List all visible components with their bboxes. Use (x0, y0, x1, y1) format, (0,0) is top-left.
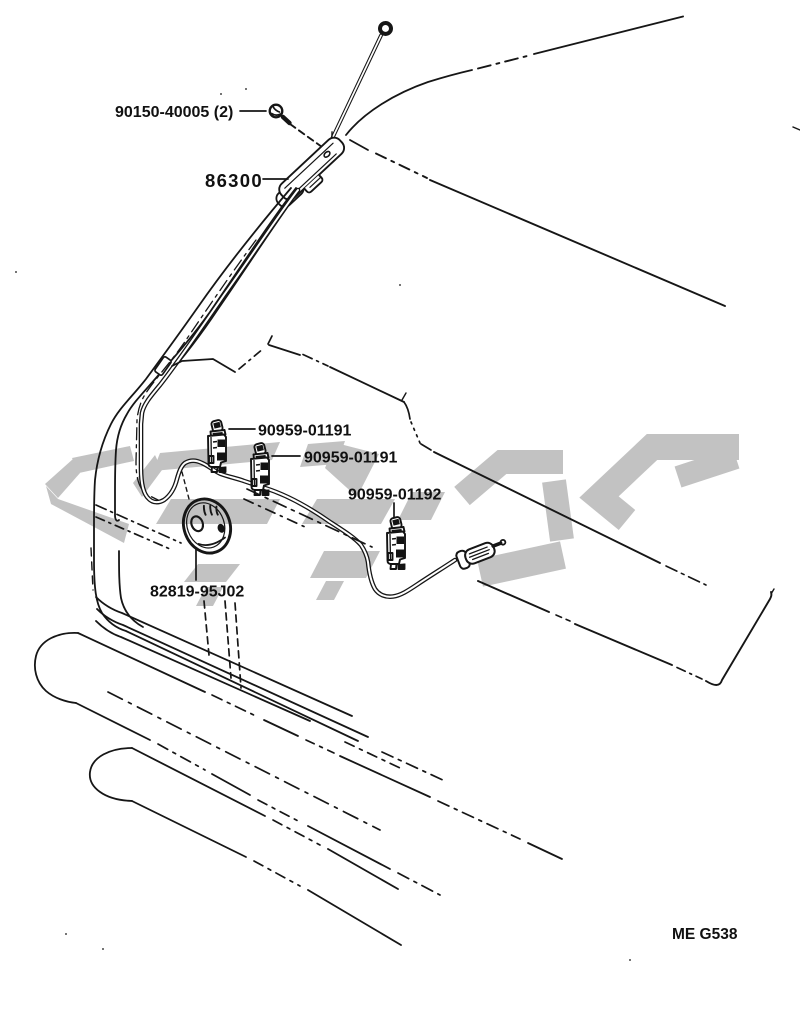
svg-text:82819-95J02: 82819-95J02 (150, 584, 244, 601)
svg-text:90150-40005 (2): 90150-40005 (2) (115, 104, 233, 121)
svg-text:90959-01191: 90959-01191 (258, 423, 352, 440)
svg-text:ME G538: ME G538 (672, 926, 738, 943)
svg-text:90959-01191: 90959-01191 (304, 450, 398, 467)
svg-text:86300: 86300 (205, 170, 263, 191)
svg-text:90959-01192: 90959-01192 (348, 487, 442, 504)
